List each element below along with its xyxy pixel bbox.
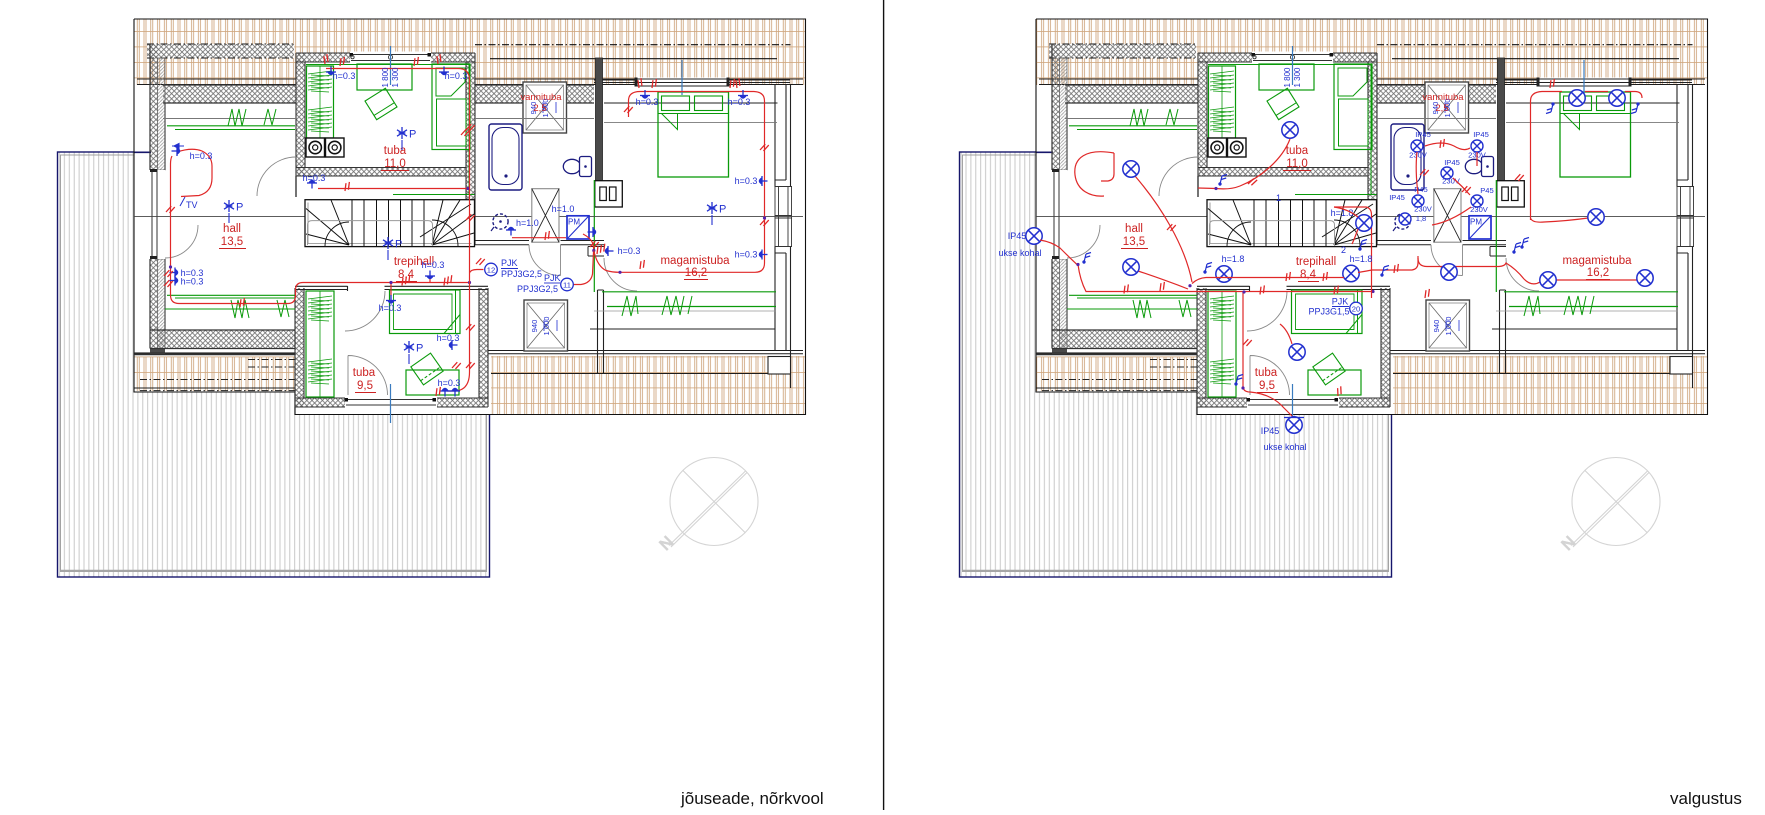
svg-text:h=0.3: h=0.3 — [618, 246, 641, 256]
svg-text:h=0.3: h=0.3 — [181, 277, 204, 287]
svg-text:13,5: 13,5 — [1123, 236, 1145, 248]
svg-text:h=1.8: h=1.8 — [1222, 254, 1245, 264]
svg-text:jõuseade, nõrkvool: jõuseade, nõrkvool — [680, 789, 824, 808]
svg-text:tuba: tuba — [384, 145, 407, 157]
svg-text:h=1.8: h=1.8 — [1331, 208, 1354, 218]
svg-text:ukse kohal: ukse kohal — [998, 248, 1041, 258]
svg-text:h=0.3: h=0.3 — [728, 97, 751, 107]
svg-text:h=0.3: h=0.3 — [636, 97, 659, 107]
svg-text:230V: 230V — [1470, 205, 1489, 214]
svg-text:ukse kohal: ukse kohal — [1263, 442, 1306, 452]
svg-text:tuba: tuba — [353, 367, 376, 379]
svg-text:PJK: PJK — [501, 258, 518, 268]
svg-text:PPJ3G2,5: PPJ3G2,5 — [517, 284, 558, 294]
svg-text:IP45: IP45 — [1008, 231, 1027, 241]
svg-text:N: N — [657, 534, 677, 554]
svg-text:1 800: 1 800 — [1283, 67, 1292, 88]
svg-text:IP45: IP45 — [1444, 158, 1460, 167]
svg-text:P: P — [395, 239, 402, 251]
svg-text:h=0.3: h=0.3 — [333, 71, 356, 81]
svg-text:IP45: IP45 — [1415, 130, 1431, 139]
svg-text:2,5: 2,5 — [1435, 103, 1448, 114]
svg-text:940: 940 — [530, 320, 539, 333]
svg-text:h=0.3: h=0.3 — [735, 250, 758, 260]
svg-text:valgustus: valgustus — [1670, 789, 1742, 808]
svg-text:1,8: 1,8 — [1416, 214, 1427, 223]
svg-text:magamistuba: magamistuba — [660, 255, 730, 267]
svg-text:230V: 230V — [1442, 177, 1461, 186]
svg-text:h=0.3: h=0.3 — [422, 260, 445, 270]
svg-text:P: P — [409, 129, 416, 141]
svg-text:P: P — [236, 202, 243, 214]
svg-text:20: 20 — [1352, 304, 1360, 313]
svg-text:16,2: 16,2 — [685, 267, 707, 279]
svg-text:12: 12 — [487, 265, 495, 274]
svg-text:magamistuba: magamistuba — [1562, 255, 1632, 267]
svg-text:940: 940 — [1432, 320, 1441, 333]
svg-text:h=0.3: h=0.3 — [303, 173, 326, 183]
svg-text:h=0.3: h=0.3 — [438, 378, 461, 388]
svg-text:230V: 230V — [1409, 151, 1428, 160]
svg-text:1 300: 1 300 — [391, 67, 400, 88]
svg-text:2: 2 — [1341, 245, 1346, 255]
svg-text:9,5: 9,5 — [1259, 380, 1275, 392]
svg-text:PJK: PJK — [544, 273, 561, 283]
svg-text:1 600: 1 600 — [542, 316, 551, 335]
svg-text:230V: 230V — [1414, 205, 1433, 214]
svg-text:IP45: IP45 — [1389, 193, 1405, 202]
svg-text:h=0.3: h=0.3 — [437, 333, 460, 343]
svg-text:P: P — [719, 204, 726, 216]
svg-text:h=1.0: h=1.0 — [516, 218, 539, 228]
svg-text:1 600: 1 600 — [1444, 316, 1453, 335]
svg-text:2,5: 2,5 — [533, 103, 546, 114]
svg-text:PPJ3G1,5: PPJ3G1,5 — [1308, 307, 1349, 317]
svg-text:h=1.8: h=1.8 — [1350, 254, 1373, 264]
svg-text:PJK: PJK — [1332, 297, 1349, 307]
svg-text:PM: PM — [1470, 218, 1482, 227]
svg-text:tuba: tuba — [1255, 367, 1278, 379]
svg-text:tuba: tuba — [1286, 145, 1309, 157]
svg-text:11,0: 11,0 — [384, 158, 406, 170]
svg-text:hall: hall — [1125, 223, 1143, 235]
svg-text:N: N — [1559, 534, 1579, 554]
svg-text:11,0: 11,0 — [1286, 158, 1308, 170]
svg-text:vannituba: vannituba — [1422, 92, 1464, 103]
svg-text:vannituba: vannituba — [520, 92, 562, 103]
svg-text:h=1.0: h=1.0 — [552, 204, 575, 214]
svg-text:P: P — [416, 343, 423, 355]
svg-text:h=0.3: h=0.3 — [379, 303, 402, 313]
svg-text:h=0.3: h=0.3 — [190, 151, 213, 161]
svg-text:PPJ3G2,5: PPJ3G2,5 — [501, 269, 542, 279]
svg-text:h=0.3: h=0.3 — [445, 71, 468, 81]
svg-text:hall: hall — [223, 223, 241, 235]
svg-text:1 300: 1 300 — [1293, 67, 1302, 88]
svg-text:PM: PM — [568, 218, 580, 227]
svg-text:TV: TV — [186, 200, 198, 210]
svg-text:16,2: 16,2 — [1587, 267, 1609, 279]
svg-text:11: 11 — [563, 280, 571, 289]
svg-text:IP45: IP45 — [1261, 426, 1280, 436]
svg-text:h=0.3: h=0.3 — [735, 176, 758, 186]
svg-text:8,4: 8,4 — [1300, 269, 1317, 281]
svg-text:P45: P45 — [1414, 185, 1428, 194]
svg-text:13,5: 13,5 — [221, 236, 243, 248]
svg-text:P45: P45 — [1480, 186, 1494, 195]
svg-text:9,5: 9,5 — [357, 380, 373, 392]
svg-text:IP45: IP45 — [1473, 130, 1489, 139]
svg-text:1 800: 1 800 — [381, 67, 390, 88]
svg-text:1: 1 — [1276, 193, 1281, 203]
svg-text:trepihall: trepihall — [1296, 256, 1336, 268]
